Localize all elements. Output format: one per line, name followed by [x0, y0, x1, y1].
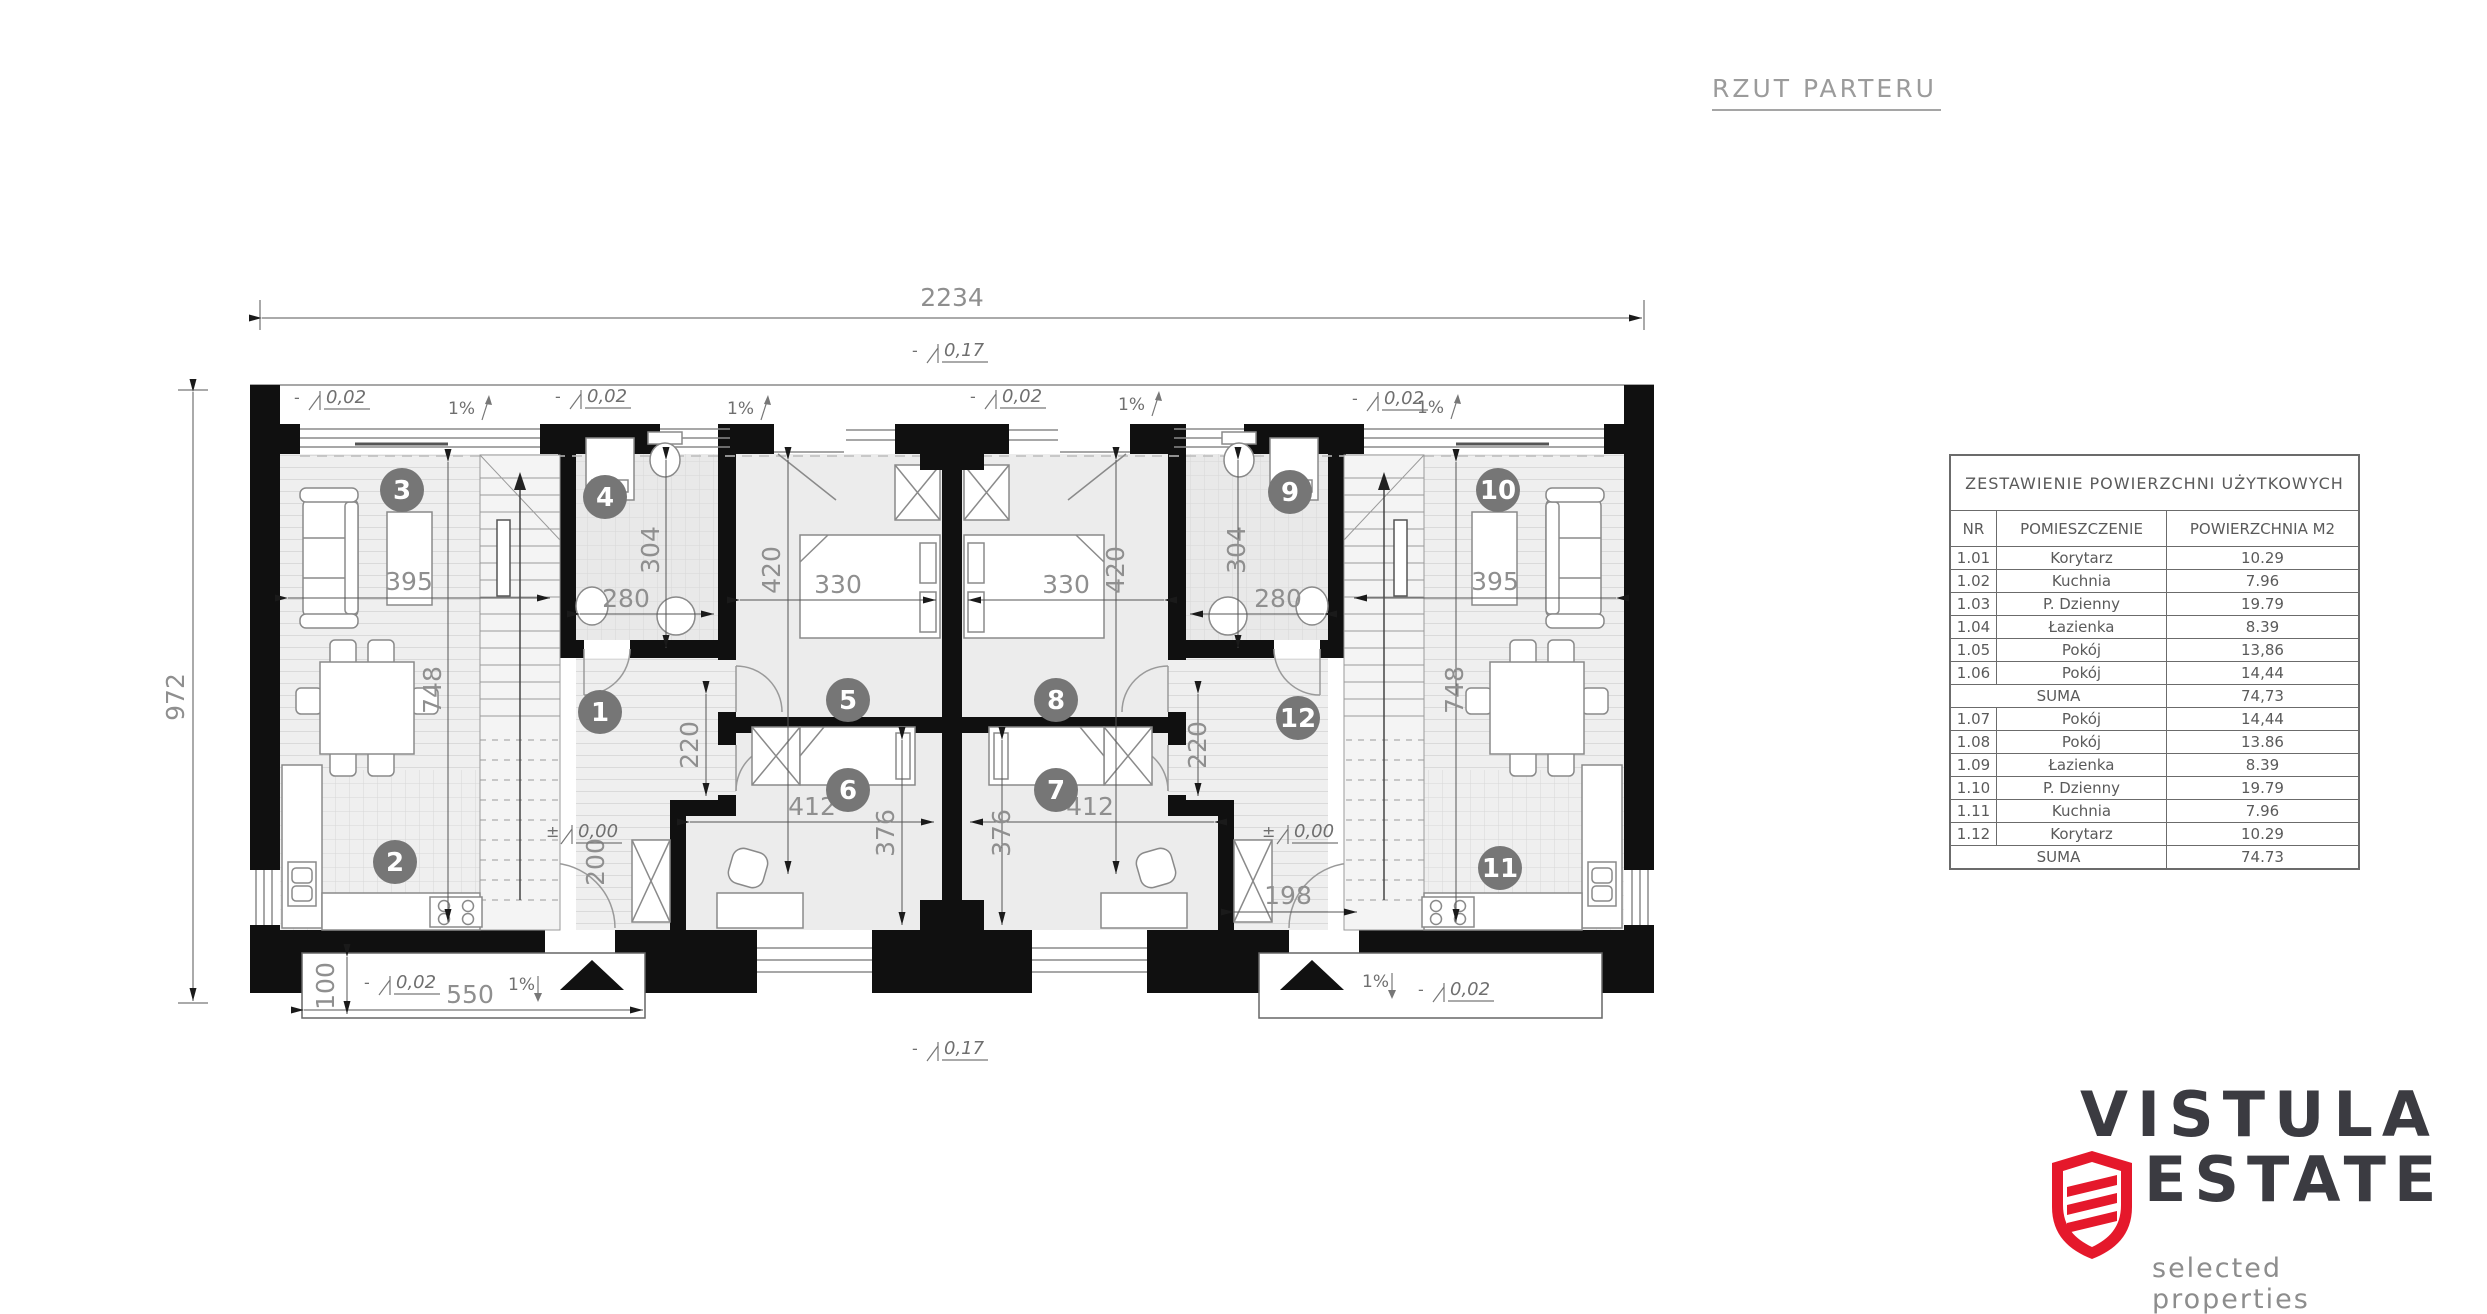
svg-text:9: 9 [1281, 478, 1299, 508]
svg-text:1%: 1% [1118, 395, 1145, 415]
area-table: ZESTAWIENIE POWIERZCHNI UŻYTKOWYCHNRPOMI… [1950, 455, 2359, 869]
table-row: 1.07Pokój14,44 [1951, 708, 2359, 731]
room-marker: 5 [826, 678, 870, 722]
svg-text:0,00: 0,00 [1294, 821, 1334, 842]
shield-icon [2050, 1149, 2134, 1261]
dim-label: 198 [1264, 881, 1312, 910]
dim-label: 972 [161, 673, 190, 721]
dim-label: 100 [311, 962, 340, 1010]
table-row: 1.12Korytarz10.29 [1951, 823, 2359, 846]
area-table-column-1: POMIESZCZENIE [1997, 511, 2167, 547]
room-marker: 9 [1268, 470, 1312, 514]
level-mark: -0,02 [555, 386, 631, 409]
svg-text:2: 2 [386, 848, 404, 878]
svg-text:12: 12 [1280, 704, 1316, 734]
dim-label: 748 [418, 666, 447, 714]
area-table-column-0: NR [1951, 511, 1997, 547]
dim-label: 420 [1101, 546, 1130, 594]
table-row-sum: SUMA74,73 [1951, 685, 2359, 708]
room-marker: 12 [1276, 696, 1320, 740]
svg-text:0,02: 0,02 [326, 387, 366, 408]
svg-text:-: - [1352, 389, 1358, 408]
logo-line2: ESTATE [2144, 1149, 2444, 1211]
svg-text:-: - [912, 341, 918, 360]
room-marker: 7 [1034, 768, 1078, 812]
svg-text:10: 10 [1480, 476, 1516, 506]
dim-label: 330 [814, 570, 862, 599]
dim-label: 220 [1183, 721, 1212, 769]
svg-text:8: 8 [1047, 686, 1065, 716]
slope-label: 1% [1417, 394, 1461, 419]
svg-text:11: 11 [1482, 854, 1518, 884]
dim-label: 420 [757, 546, 786, 594]
table-row-sum: SUMA74.73 [1951, 846, 2359, 869]
svg-text:0,17: 0,17 [944, 1038, 985, 1059]
dim-label: 395 [1471, 567, 1519, 596]
svg-text:-: - [1418, 980, 1424, 999]
svg-text:1%: 1% [1362, 972, 1389, 992]
svg-text:1%: 1% [727, 399, 754, 419]
table-row: 1.03P. Dzienny19.79 [1951, 593, 2359, 616]
level-mark: ±0,00 [546, 821, 622, 844]
svg-text:5: 5 [839, 686, 857, 716]
svg-text:1: 1 [591, 698, 609, 728]
svg-text:0,17: 0,17 [944, 340, 985, 361]
dim-label: 395 [385, 567, 433, 596]
page: 2234972395395748748304304280280420420330… [0, 0, 2487, 1314]
dim-label: 280 [602, 584, 650, 613]
level-mark: -0,02 [294, 387, 370, 410]
svg-text:4: 4 [596, 483, 614, 513]
svg-text:-: - [364, 973, 370, 992]
sofa [300, 488, 358, 628]
level-mark: -0,17 [912, 1038, 988, 1061]
room-marker: 6 [826, 768, 870, 812]
dim-label: 2234 [920, 283, 984, 312]
logo-line1: VISTULA [2080, 1082, 2440, 1147]
tv-cabinet [497, 520, 510, 596]
room-marker: 4 [583, 475, 627, 519]
table-row: 1.04Łazienka8.39 [1951, 616, 2359, 639]
dim-label: 280 [1254, 584, 1302, 613]
svg-text:1%: 1% [508, 975, 535, 995]
room-marker: 3 [380, 468, 424, 512]
table-row: 1.06Pokój14,44 [1951, 662, 2359, 685]
wardrobe [632, 840, 670, 922]
table-row: 1.09Łazienka8.39 [1951, 754, 2359, 777]
svg-text:±: ± [1262, 822, 1275, 841]
svg-text:0,02: 0,02 [1002, 386, 1042, 407]
stairs [480, 455, 560, 930]
dim-label: 748 [1440, 666, 1469, 714]
table-row: 1.01Korytarz10.29 [1951, 547, 2359, 570]
table-row: 1.10P. Dzienny19.79 [1951, 777, 2359, 800]
dim-label: 200 [581, 838, 610, 886]
area-table-column-2: POWIERZCHNIA M2 [2167, 511, 2359, 547]
dim-label: 376 [987, 809, 1016, 857]
svg-text:7: 7 [1047, 776, 1065, 806]
room-marker: 10 [1476, 468, 1520, 512]
window-living-top [300, 429, 540, 447]
svg-text:0,00: 0,00 [578, 821, 618, 842]
logo: VISTULA ESTATE selected properties [2040, 1082, 2440, 1314]
svg-text:-: - [555, 387, 561, 406]
dim-label: 550 [446, 980, 494, 1009]
slope-label: 1% [1118, 391, 1162, 416]
svg-text:3: 3 [393, 476, 411, 506]
dim-label: 220 [675, 721, 704, 769]
table-row: 1.08Pokój13.86 [1951, 731, 2359, 754]
level-mark: -0,02 [970, 386, 1046, 409]
dim-label: 376 [871, 809, 900, 857]
svg-text:-: - [970, 387, 976, 406]
dim-label: 304 [1222, 526, 1251, 574]
page-title: RZUT PARTERU [1712, 74, 1941, 111]
dim-label: 330 [1042, 570, 1090, 599]
area-table-title: ZESTAWIENIE POWIERZCHNI UŻYTKOWYCH [1951, 456, 2359, 511]
table-row: 1.02Kuchnia7.96 [1951, 570, 2359, 593]
room-marker: 1 [578, 690, 622, 734]
room-marker: 8 [1034, 678, 1078, 722]
logo-tagline: selected properties [2152, 1253, 2440, 1314]
room-marker: 2 [373, 840, 417, 884]
window-bottom [757, 930, 872, 993]
window-side [250, 870, 280, 925]
room-marker: 11 [1478, 846, 1522, 890]
level-mark: ±0,00 [1262, 821, 1338, 844]
svg-text:-: - [294, 388, 300, 407]
svg-text:1%: 1% [1417, 398, 1444, 418]
table-row: 1.11Kuchnia7.96 [1951, 800, 2359, 823]
dim-label: 304 [636, 526, 665, 574]
svg-text:0,02: 0,02 [396, 972, 436, 993]
slope-label: 1% [448, 395, 492, 420]
svg-text:-: - [912, 1039, 918, 1058]
slope-label: 1% [727, 395, 771, 420]
svg-text:0,02: 0,02 [1450, 979, 1490, 1000]
svg-text:6: 6 [839, 776, 857, 806]
svg-text:0,02: 0,02 [587, 386, 627, 407]
svg-text:1%: 1% [448, 399, 475, 419]
level-mark: -0,17 [912, 340, 988, 363]
table-row: 1.05Pokój13,86 [1951, 639, 2359, 662]
svg-text:±: ± [546, 822, 559, 841]
